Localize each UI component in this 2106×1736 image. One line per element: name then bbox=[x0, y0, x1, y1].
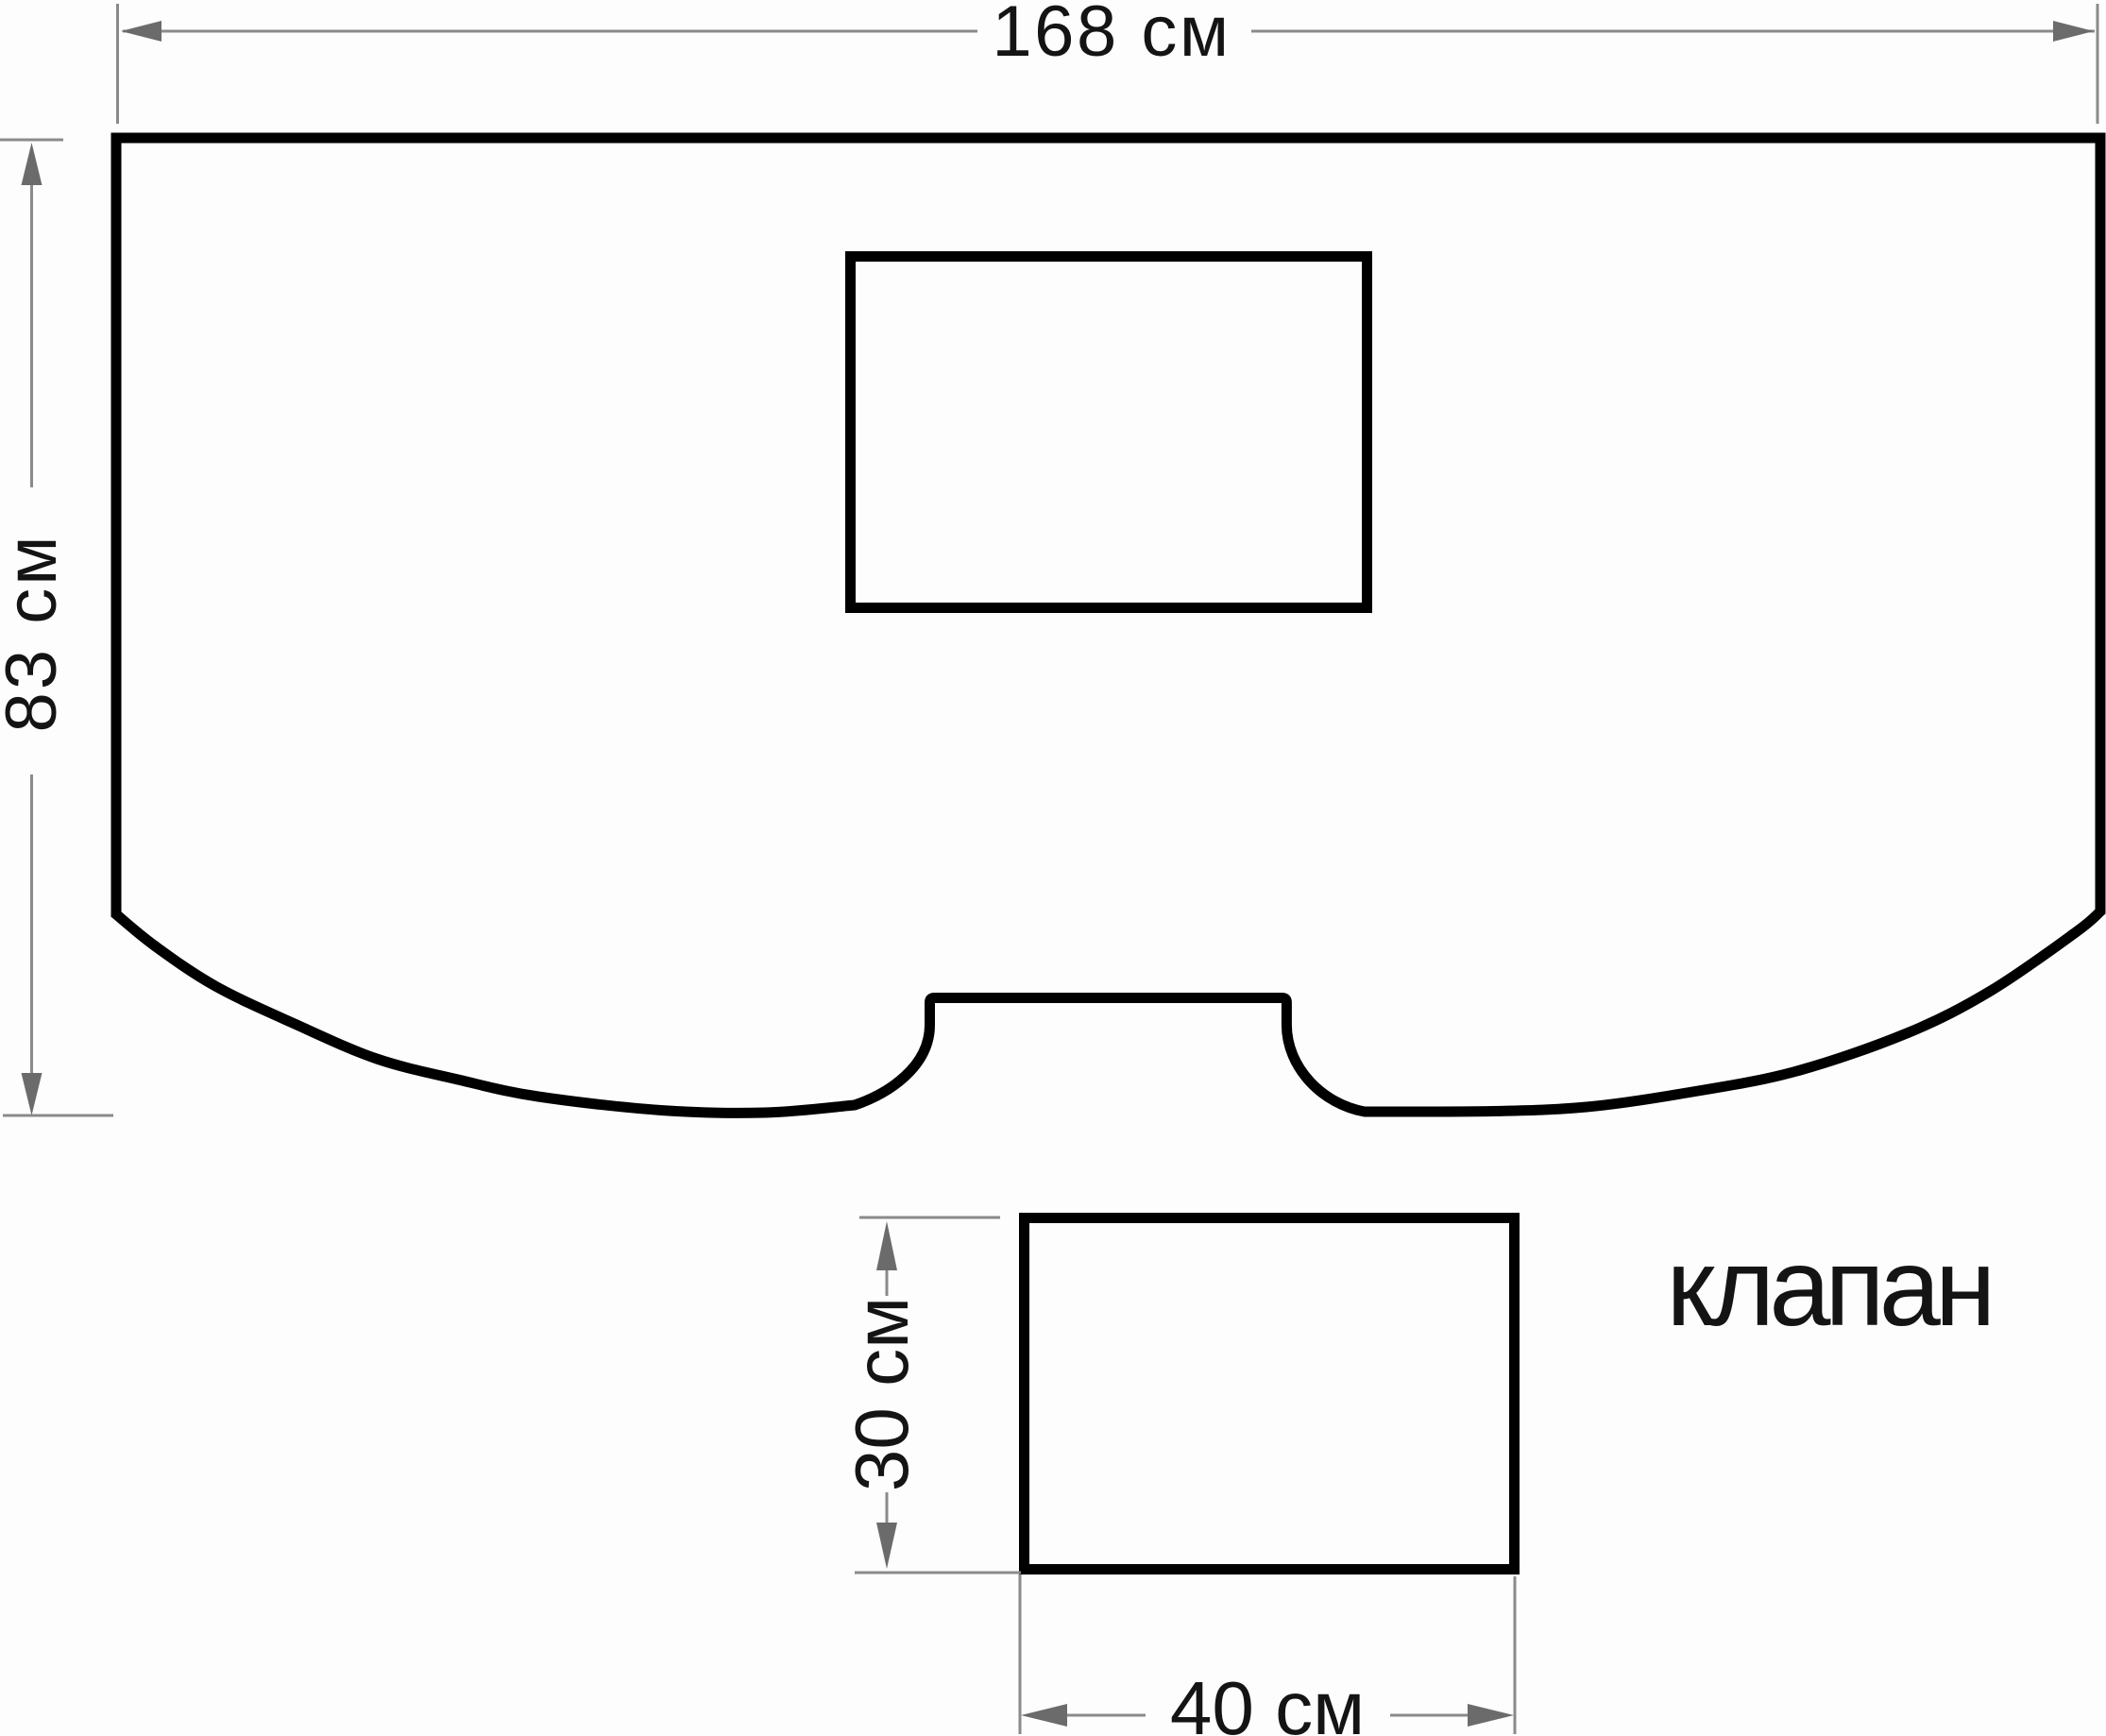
svg-text:168 см: 168 см bbox=[992, 0, 1231, 72]
svg-text:40 см: 40 см bbox=[1170, 1666, 1365, 1736]
svg-text:30 см: 30 см bbox=[840, 1297, 924, 1491]
svg-text:клапан: клапан bbox=[1667, 1225, 1991, 1349]
svg-text:83 см: 83 см bbox=[0, 534, 72, 733]
